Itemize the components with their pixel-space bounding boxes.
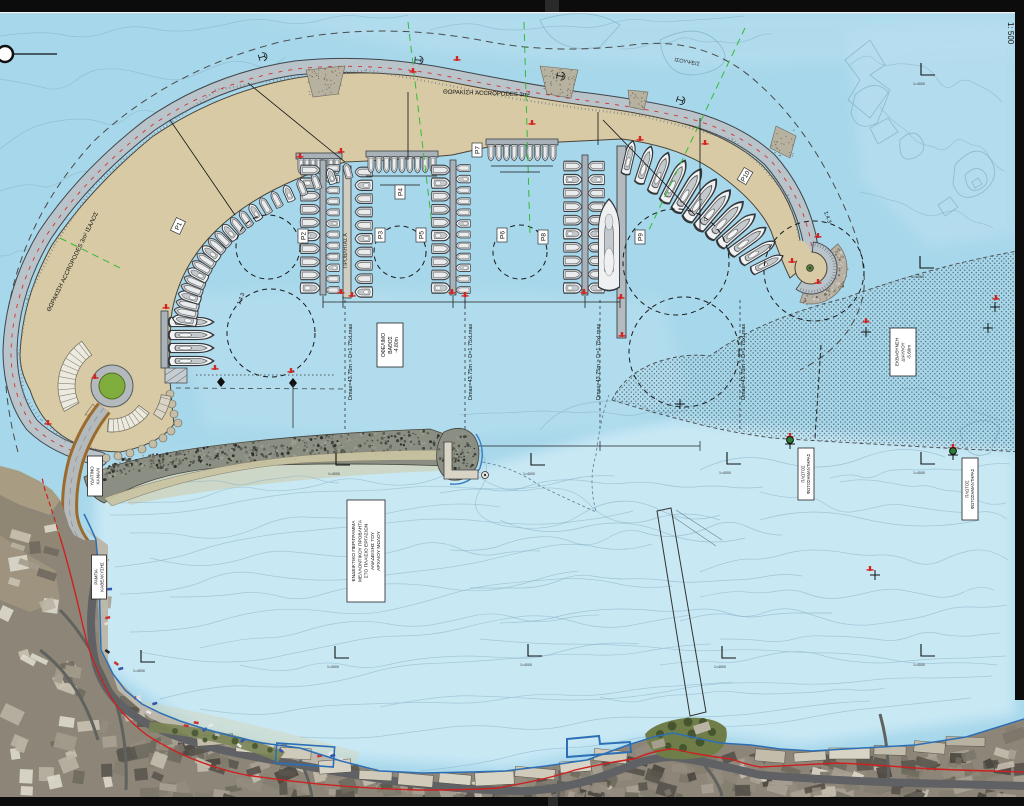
svg-text:1=4000: 1=4000	[328, 472, 340, 476]
svg-text:ΔΙΑΥΛΟΥ: ΔΙΑΥΛΟΥ	[901, 342, 906, 361]
svg-text:1=4000: 1=4000	[913, 82, 925, 86]
svg-text:ΟΦΕΛΙΜΟ: ΟΦΕΛΙΜΟ	[381, 333, 387, 357]
svg-text:ΒΑΘΟΣ: ΒΑΘΟΣ	[388, 336, 394, 353]
svg-text:ΕΚΒΑΘΥΝΣΗ: ΕΚΒΑΘΥΝΣΗ	[895, 338, 900, 366]
svg-text:-5.60m: -5.60m	[907, 345, 912, 359]
svg-text:ΡΑΜΠΑ: ΡΑΜΠΑ	[94, 569, 99, 584]
svg-text:1=4000: 1=4000	[714, 665, 726, 669]
svg-text:Dmax=43.75m > D=1.75xLmax: Dmax=43.75m > D=1.75xLmax	[468, 323, 474, 400]
svg-text:ΦΩΤΟΣΗΜΑΝΤΗΡΑΣ: ΦΩΤΟΣΗΜΑΝΤΗΡΑΣ	[970, 468, 975, 509]
svg-text:1=4000: 1=4000	[913, 663, 925, 667]
svg-text:P6: P6	[499, 231, 506, 239]
svg-text:P8: P8	[540, 233, 547, 241]
svg-text:ΠΛΩΤΟΣ: ΠΛΩΤΟΣ	[801, 465, 806, 483]
svg-text:P4: P4	[397, 188, 404, 196]
svg-text:ΕΝΔΕΙΚΤΙΚΟ ΠΕΡΙΓΡΑΜΜΑ: ΕΝΔΕΙΚΤΙΚΟ ΠΕΡΙΓΡΑΜΜΑ	[351, 520, 357, 582]
svg-text:ΥΔΑΤΙΝΟ: ΥΔΑΤΙΝΟ	[90, 466, 95, 486]
svg-text:Dmax=43.75m > D=1.75xLmax: Dmax=43.75m > D=1.75xLmax	[596, 323, 602, 400]
svg-text:1=4000: 1=4000	[719, 471, 731, 475]
svg-text:ΑΝΑΔΕΙΞΗΣ ΤΟΥ: ΑΝΑΔΕΙΞΗΣ ΤΟΥ	[370, 531, 376, 570]
svg-text:ΜΕΛΛΟΝΤΙΚΟΥ ΠΡΟΒΛΗΤΑ: ΜΕΛΛΟΝΤΙΚΟΥ ΠΡΟΒΛΗΤΑ	[357, 519, 363, 582]
svg-text:ΚΑΘΕΛΚΥΣΗΣ: ΚΑΘΕΛΚΥΣΗΣ	[99, 562, 104, 592]
svg-text:Dmax=43.75m > D=1.75xLmax: Dmax=43.75m > D=1.75xLmax	[741, 323, 747, 400]
svg-text:P5: P5	[418, 231, 425, 239]
svg-text:P9: P9	[637, 233, 644, 241]
svg-text:Dmax=43.75m > D=1.75xLmax: Dmax=43.75m > D=1.75xLmax	[348, 323, 354, 400]
svg-text:1=4000: 1=4000	[133, 669, 145, 673]
svg-text:1=4000: 1=4000	[912, 275, 924, 279]
svg-text:1=4000: 1=4000	[523, 472, 535, 476]
svg-text:ΦΩΤΟΣΗΜΑΝΤΗΡΑΣ: ΦΩΤΟΣΗΜΑΝΤΗΡΑΣ	[806, 453, 811, 494]
svg-text:ΚΑΝΑΛΙ: ΚΑΝΑΛΙ	[96, 468, 101, 485]
svg-text:ΣΤΟ ΠΛΑΙΣΙΟ ΕΡΓΑΣΙΩΝ: ΣΤΟ ΠΛΑΙΣΙΟ ΕΡΓΑΣΙΩΝ	[364, 523, 370, 578]
svg-text:P7: P7	[474, 146, 481, 154]
svg-text:ΠΡΟΒΛΗΤΑΣ Α: ΠΡΟΒΛΗΤΑΣ Α	[343, 233, 349, 268]
svg-text:1: 500: 1: 500	[1006, 22, 1015, 45]
svg-text:1=4000: 1=4000	[913, 471, 925, 475]
svg-text:1=4000: 1=4000	[327, 665, 339, 669]
svg-text:ΑΡΧΑΙΟΥ ΜΩΛΟΥ: ΑΡΧΑΙΟΥ ΜΩΛΟΥ	[376, 530, 382, 570]
svg-text:1=4000: 1=4000	[520, 663, 532, 667]
svg-text:P3: P3	[377, 231, 384, 239]
svg-text:P2: P2	[300, 232, 307, 240]
svg-text:-4.80m: -4.80m	[394, 337, 400, 353]
svg-text:ΠΛΩΤΟΣ: ΠΛΩΤΟΣ	[965, 480, 970, 498]
